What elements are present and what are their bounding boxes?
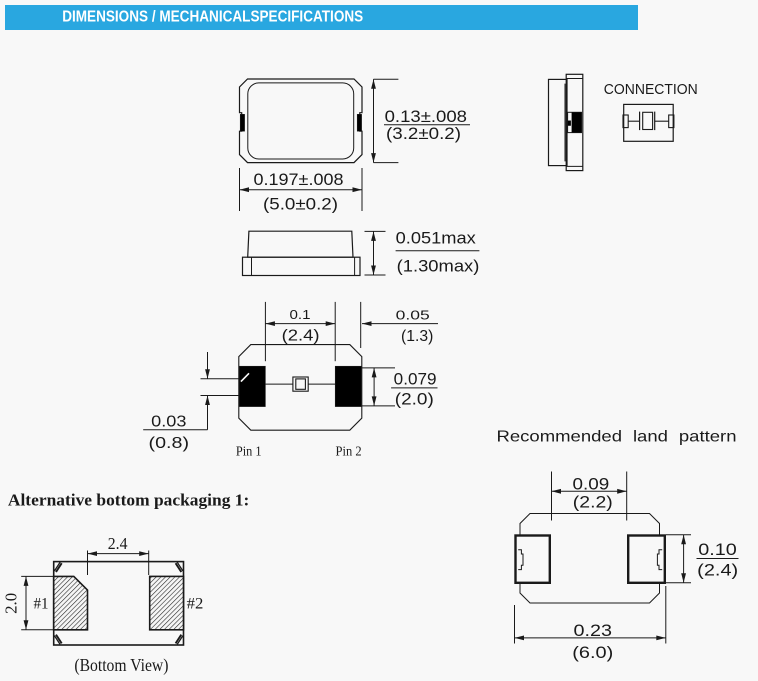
svg-text:0.23: 0.23	[574, 621, 613, 640]
svg-text:(2.4): (2.4)	[282, 328, 320, 345]
svg-text:CONNECTION: CONNECTION	[604, 82, 698, 98]
svg-text:0.05: 0.05	[396, 307, 430, 322]
svg-text:0.079: 0.079	[394, 369, 437, 388]
svg-text:2.0: 2.0	[2, 593, 21, 614]
svg-text:Pin 2: Pin 2	[336, 445, 362, 460]
svg-text:(2.4): (2.4)	[697, 561, 738, 580]
svg-text:#2: #2	[187, 595, 204, 612]
svg-text:DIMENSIONS / MECHANICALSPECIFI: DIMENSIONS / MECHANICALSPECIFICATIONS	[62, 9, 363, 26]
svg-text:(6.0): (6.0)	[572, 643, 613, 662]
svg-text:2.4: 2.4	[108, 534, 128, 553]
svg-text:0.09: 0.09	[573, 474, 610, 493]
svg-text:(0.8): (0.8)	[149, 435, 190, 452]
svg-text:(2.0): (2.0)	[395, 389, 434, 408]
svg-text:(2.2): (2.2)	[573, 493, 613, 512]
svg-text:#1: #1	[33, 595, 48, 612]
svg-text:0.13±.008: 0.13±.008	[385, 107, 467, 126]
svg-text:Alternative bottom packaging 1: Alternative bottom packaging 1:	[8, 490, 249, 509]
svg-text:(1.3): (1.3)	[401, 328, 433, 345]
svg-text:0.03: 0.03	[151, 413, 186, 430]
svg-text:(3.2±0.2): (3.2±0.2)	[386, 124, 461, 143]
svg-text:0.1: 0.1	[290, 307, 311, 322]
svg-text:(1.30max): (1.30max)	[397, 257, 480, 276]
svg-text:Recommended land pattern: Recommended land pattern	[497, 429, 737, 446]
svg-text:(Bottom View): (Bottom View)	[74, 655, 168, 676]
svg-text:0.10: 0.10	[698, 540, 737, 559]
svg-text:Pin 1: Pin 1	[236, 445, 262, 460]
svg-text:0.197±.008: 0.197±.008	[254, 170, 344, 189]
svg-text:0.051max: 0.051max	[396, 229, 477, 248]
svg-text:(5.0±0.2): (5.0±0.2)	[263, 195, 338, 214]
